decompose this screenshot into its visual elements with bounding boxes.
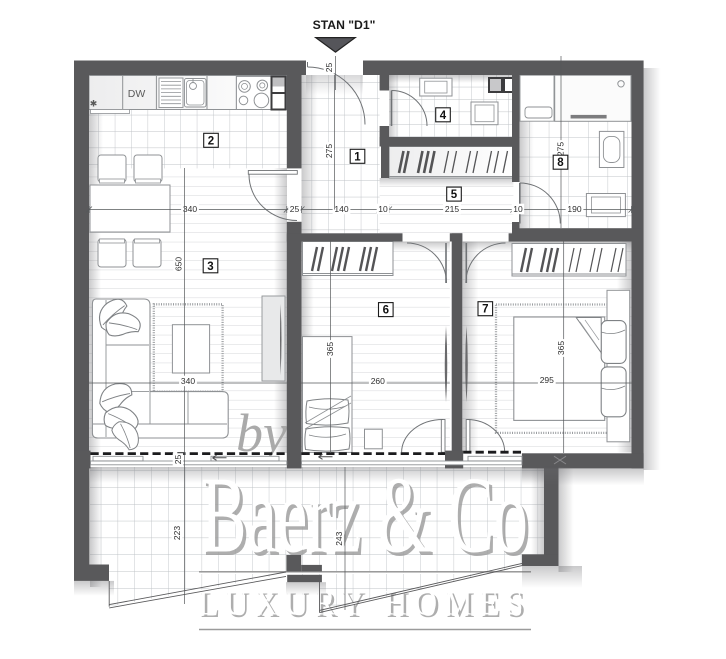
svg-text:275: 275 — [324, 144, 334, 158]
svg-text:✱: ✱ — [90, 99, 98, 109]
svg-text:Baerz & Co: Baerz & Co — [201, 455, 528, 576]
svg-text:1: 1 — [354, 151, 361, 163]
svg-text:2: 2 — [208, 135, 214, 147]
svg-text:3: 3 — [207, 261, 213, 273]
svg-text:215: 215 — [445, 204, 459, 214]
svg-text:25: 25 — [324, 63, 334, 73]
svg-text:25: 25 — [173, 455, 183, 465]
svg-text:340: 340 — [183, 204, 197, 214]
svg-text:4: 4 — [440, 110, 447, 122]
svg-text:8: 8 — [557, 157, 564, 169]
svg-text:275: 275 — [556, 142, 566, 156]
svg-text:STAN "D1": STAN "D1" — [313, 18, 376, 32]
svg-text:190: 190 — [567, 204, 581, 214]
svg-text:140: 140 — [334, 204, 348, 214]
svg-text:10: 10 — [378, 204, 388, 214]
svg-text:340: 340 — [181, 376, 195, 386]
svg-text:295: 295 — [540, 375, 554, 385]
svg-text:243: 243 — [334, 531, 344, 545]
svg-text:365: 365 — [556, 341, 566, 355]
svg-text:6: 6 — [383, 305, 389, 317]
svg-text:260: 260 — [371, 376, 385, 386]
svg-text:25: 25 — [290, 204, 300, 214]
svg-text:7: 7 — [482, 304, 488, 316]
svg-text:DW: DW — [128, 88, 146, 100]
svg-text:10: 10 — [513, 204, 523, 214]
svg-text:223: 223 — [172, 526, 182, 540]
svg-text:365: 365 — [325, 342, 335, 356]
svg-text:5: 5 — [451, 189, 458, 201]
svg-text:650: 650 — [174, 257, 184, 271]
